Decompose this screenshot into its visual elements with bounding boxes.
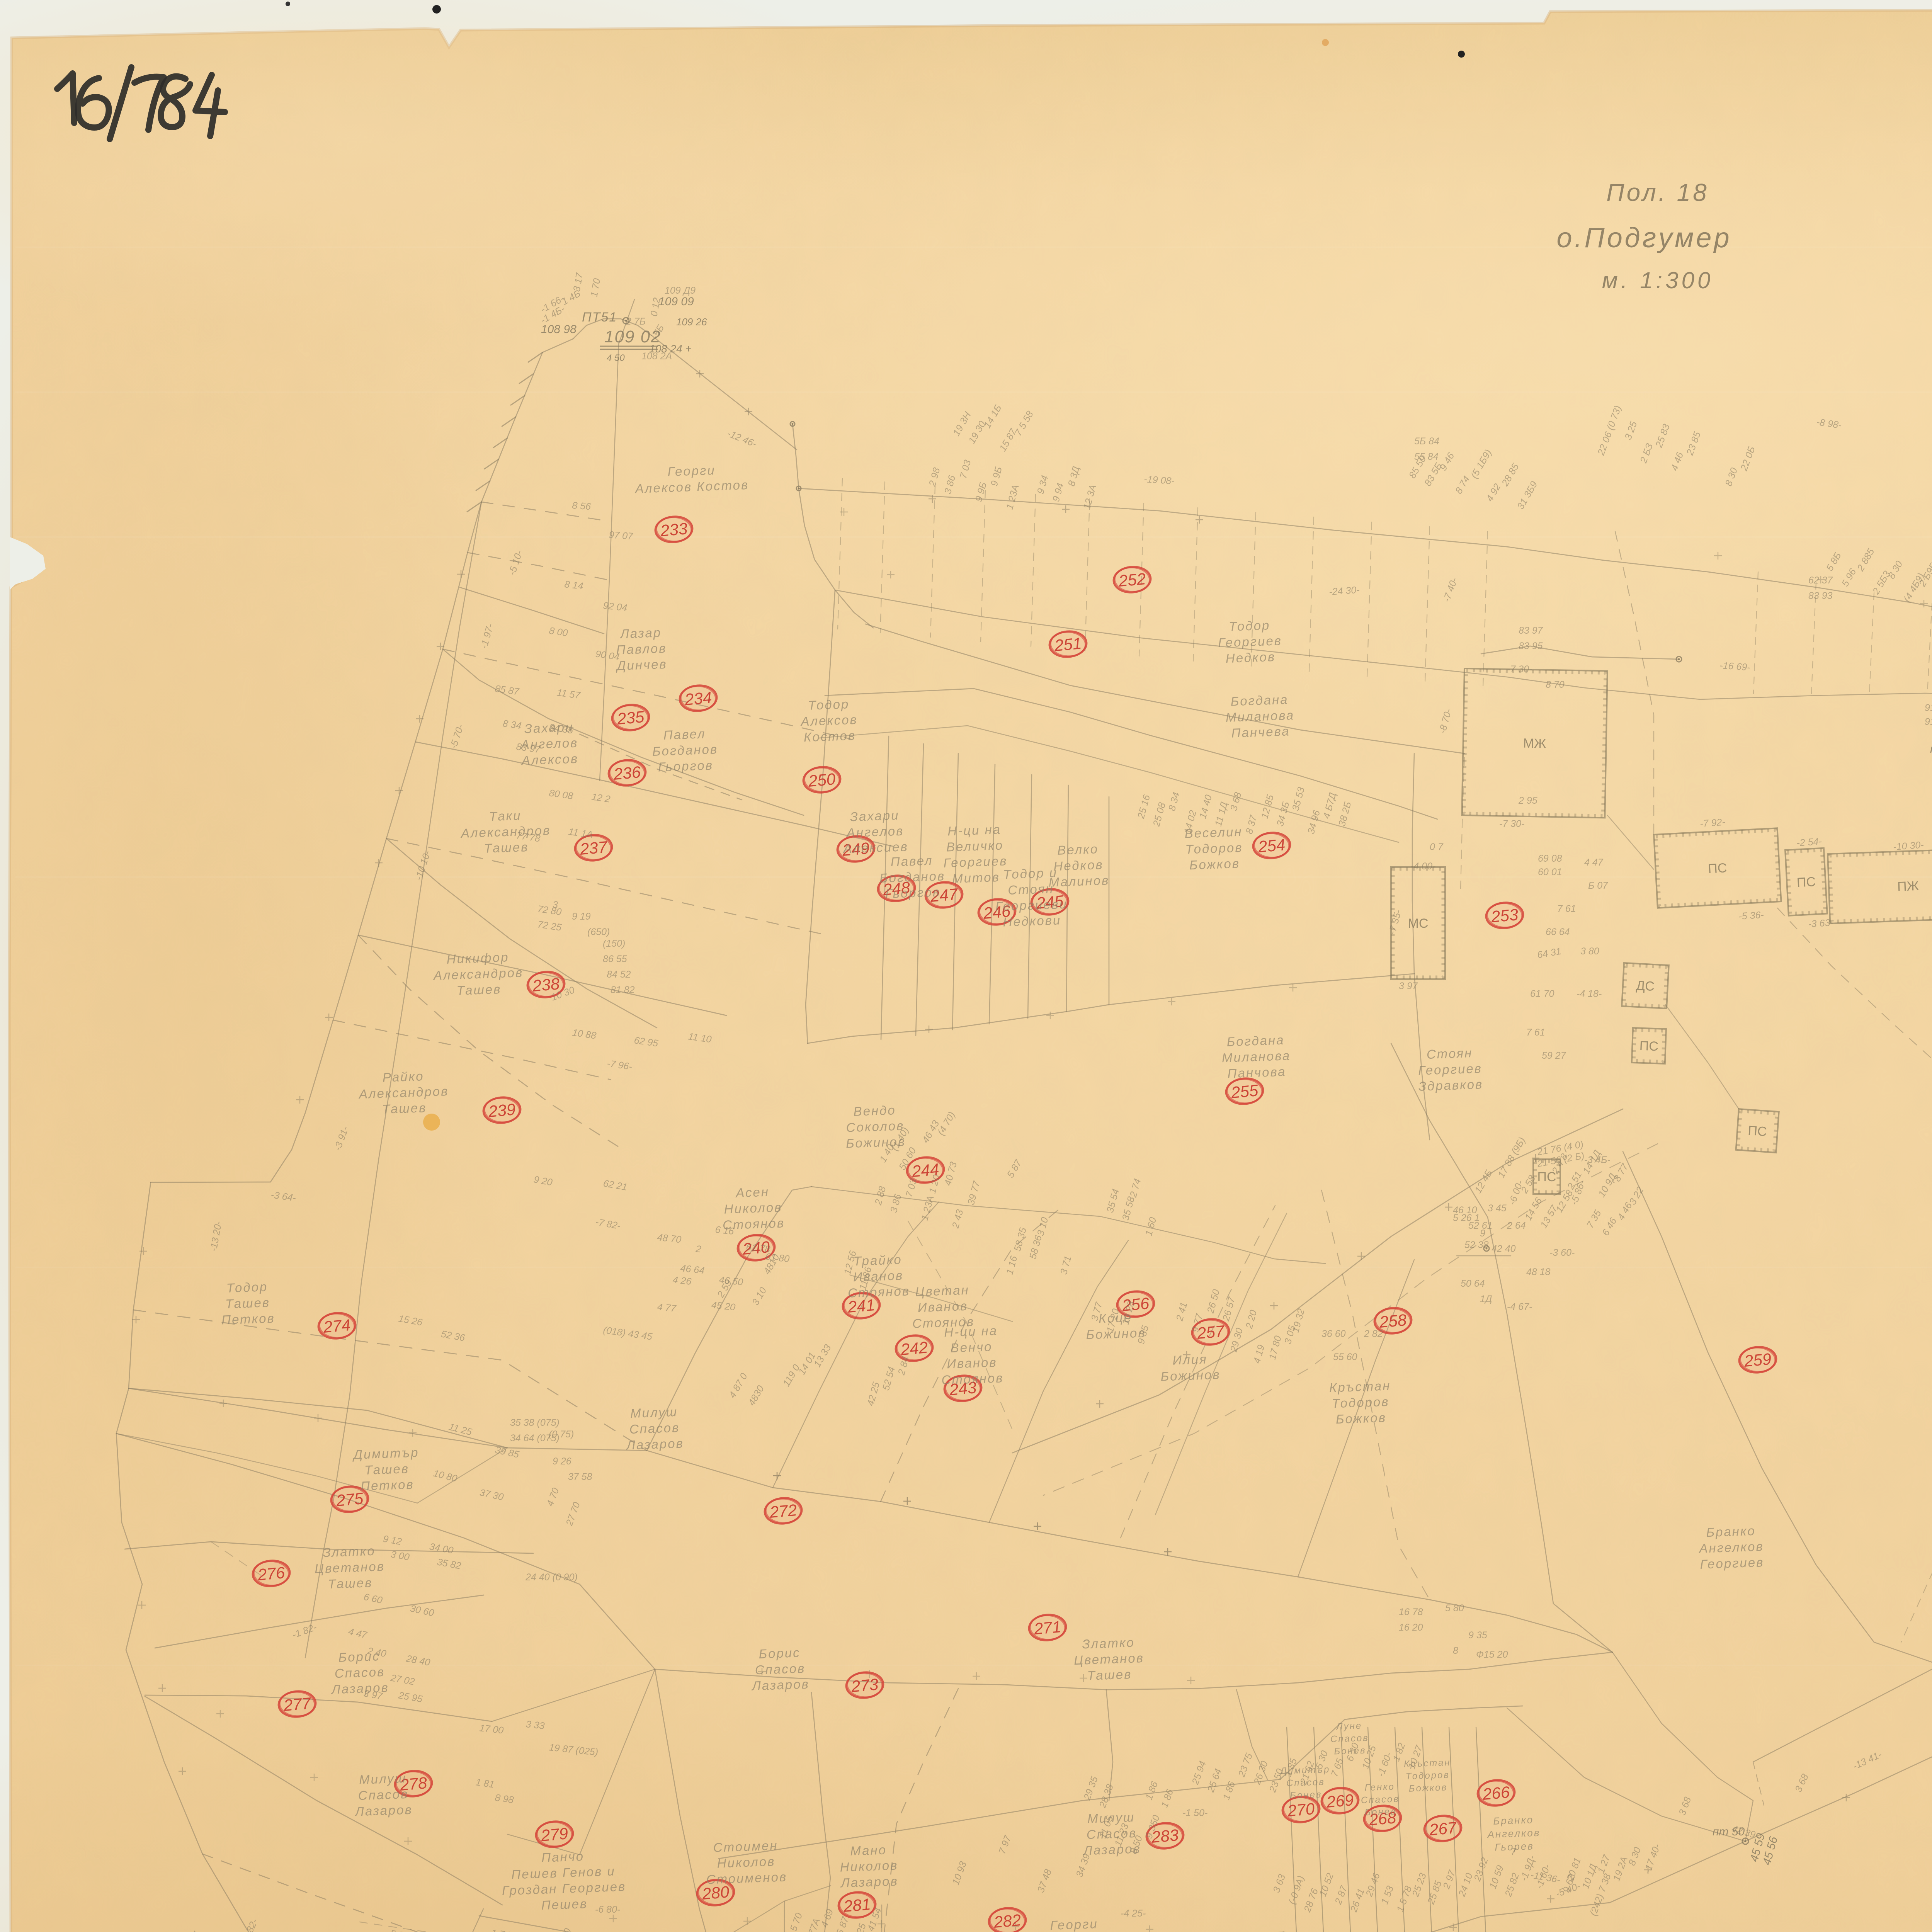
svg-text:Божинов: Божинов <box>1160 1367 1221 1383</box>
svg-text:Стоянов: Стоянов <box>941 1371 1004 1387</box>
svg-text:-24 30-: -24 30- <box>1328 585 1360 597</box>
svg-text:Богдана: Богдана <box>1230 692 1289 708</box>
svg-text:Тодоров: Тодоров <box>1332 1394 1389 1410</box>
svg-text:8 56: 8 56 <box>572 500 592 512</box>
svg-text:Златко: Златко <box>1082 1635 1135 1651</box>
svg-text:Иванов: Иванов <box>917 1299 968 1315</box>
svg-text:Богдана: Богдана <box>1226 1032 1285 1049</box>
svg-text:Бранко: Бранко <box>1706 1524 1756 1539</box>
svg-text:Бонев: Бонев <box>1290 1789 1322 1801</box>
svg-text:35 38 (075): 35 38 (075) <box>510 1417 560 1428</box>
svg-text:МЖ: МЖ <box>1523 736 1546 751</box>
svg-text:1Д: 1Д <box>1480 1294 1492 1304</box>
svg-text:Ташев: Ташев <box>328 1575 373 1591</box>
svg-text:ПС: ПС <box>1708 861 1727 876</box>
svg-text:ПС: ПС <box>1747 1123 1767 1139</box>
svg-text:(650): (650) <box>587 927 610 937</box>
svg-text:66 64: 66 64 <box>1546 927 1570 937</box>
svg-text:3 45: 3 45 <box>1488 1203 1507 1214</box>
svg-text:9 35: 9 35 <box>1468 1630 1487 1641</box>
svg-text:-2 54-: -2 54- <box>1796 836 1822 848</box>
svg-text:Трайко: Трайко <box>853 1252 902 1268</box>
svg-text:Димитър: Димитър <box>352 1445 419 1462</box>
svg-text:Костов: Костов <box>803 728 856 745</box>
svg-text:Митов: Митов <box>952 870 1000 886</box>
svg-text:42 40: 42 40 <box>1492 1243 1516 1254</box>
svg-text:Кръстан: Кръстан <box>1329 1378 1391 1395</box>
svg-text:Недков: Недков <box>1053 857 1104 873</box>
svg-text:Алексиев: Алексиев <box>842 839 909 856</box>
svg-text:97 07: 97 07 <box>609 529 634 542</box>
svg-text:4 50: 4 50 <box>607 353 625 363</box>
svg-text:-16 69-: -16 69- <box>1719 660 1751 673</box>
svg-text:Миланова: Миланова <box>1225 708 1294 724</box>
svg-text:83 95: 83 95 <box>1519 641 1543 651</box>
svg-text:Петков: Петков <box>361 1477 415 1493</box>
svg-text:Мано: Мано <box>850 1842 887 1858</box>
svg-text:271: 271 <box>1033 1617 1062 1638</box>
svg-text:61 70: 61 70 <box>1530 988 1554 999</box>
svg-text:2 64: 2 64 <box>1507 1220 1526 1231</box>
svg-text:Георгиев: Георгиев <box>1218 633 1282 650</box>
svg-text:259: 259 <box>1743 1350 1772 1370</box>
svg-text:Стоимен: Стоимен <box>713 1838 778 1855</box>
svg-text:-4 25-: -4 25- <box>1121 1908 1146 1919</box>
svg-text:5Б 84: 5Б 84 <box>1414 436 1439 447</box>
svg-text:Лазаров: Лазаров <box>751 1677 810 1693</box>
svg-text:Райко: Райко <box>382 1069 424 1085</box>
svg-text:Никифор: Никифор <box>446 950 509 966</box>
svg-text:Милуш: Милуш <box>630 1405 678 1420</box>
svg-text:ПЖ: ПЖ <box>1897 879 1919 894</box>
svg-text:273: 273 <box>850 1675 879 1696</box>
svg-text:255: 255 <box>1230 1081 1259 1102</box>
svg-text:Величко: Величко <box>946 838 1003 854</box>
svg-text:2 82: 2 82 <box>1364 1328 1383 1339</box>
svg-text:62 37: 62 37 <box>1808 575 1833 586</box>
svg-text:Гьоргов: Гьоргов <box>658 758 713 774</box>
svg-text:Спасов: Спасов <box>1330 1733 1369 1744</box>
svg-text:274: 274 <box>322 1316 351 1336</box>
svg-text:9 26: 9 26 <box>553 1456 571 1467</box>
svg-text:Алексов: Алексов <box>800 712 858 728</box>
svg-text:Николов: Николов <box>840 1858 898 1874</box>
svg-text:Лазаров: Лазаров <box>840 1874 899 1890</box>
svg-text:2 7Б: 2 7Б <box>626 316 646 327</box>
svg-text:Спасов: Спасов <box>334 1665 385 1681</box>
svg-text:м. 1:300: м. 1:300 <box>1602 267 1714 293</box>
svg-text:ПС: ПС <box>1639 1039 1658 1054</box>
svg-text:6 16: 6 16 <box>714 1224 734 1237</box>
svg-text:60 01: 60 01 <box>1538 867 1562 878</box>
svg-text:0 7: 0 7 <box>1430 842 1444 852</box>
svg-text:-4 00-: -4 00- <box>1410 861 1435 872</box>
svg-text:Божков: Божков <box>1189 856 1240 872</box>
svg-text:239: 239 <box>487 1100 516 1121</box>
svg-text:-1 50-: -1 50- <box>1182 1808 1207 1818</box>
svg-text:Лазар: Лазар <box>619 625 662 641</box>
svg-text:Н-ци на: Н-ци на <box>944 1323 998 1340</box>
svg-text:50 64: 50 64 <box>1461 1278 1485 1289</box>
svg-text:55 60: 55 60 <box>1333 1352 1357 1362</box>
svg-text:4 77: 4 77 <box>656 1301 677 1314</box>
svg-text:3: 3 <box>553 900 558 910</box>
svg-text:о.Подгумер: о.Подгумер <box>1556 223 1731 253</box>
svg-text:Здравков: Здравков <box>1418 1077 1483 1094</box>
svg-text:МС: МС <box>1408 916 1429 931</box>
svg-text:Ташев: Ташев <box>456 982 502 998</box>
svg-text:252: 252 <box>1117 570 1146 590</box>
svg-text:Недков: Недков <box>1225 650 1276 665</box>
svg-text:Божков: Божков <box>1335 1410 1386 1427</box>
svg-text:282: 282 <box>993 1911 1022 1931</box>
svg-text:Павел: Павел <box>663 726 706 742</box>
svg-text:Ангелков: Ангелков <box>1486 1827 1541 1840</box>
svg-text:пт 40: пт 40 <box>1930 743 1932 755</box>
svg-text:108 2А: 108 2А <box>641 351 672 362</box>
svg-text:Лазаров: Лазаров <box>354 1802 413 1818</box>
svg-text:91 22: 91 22 <box>1925 716 1932 727</box>
svg-text:Ф15 20: Ф15 20 <box>1476 1649 1508 1660</box>
svg-text:237: 237 <box>579 838 609 858</box>
svg-text:Стоименов: Стоименов <box>706 1869 787 1886</box>
svg-text:7 61: 7 61 <box>1557 903 1576 914</box>
svg-text:Миланова: Миланова <box>1221 1048 1291 1065</box>
svg-text:279: 279 <box>540 1824 569 1845</box>
svg-text:Панчева: Панчева <box>1231 724 1290 740</box>
svg-text:8: 8 <box>1453 1645 1458 1656</box>
svg-text:Ангелков: Ангелков <box>1698 1539 1764 1556</box>
svg-text:Георги: Георги <box>1050 1917 1098 1932</box>
svg-text:Илия: Илия <box>1172 1352 1207 1367</box>
svg-text:Милуш: Милуш <box>359 1771 406 1787</box>
svg-text:Ташев: Ташев <box>225 1295 270 1311</box>
svg-text:16 78: 16 78 <box>1399 1607 1423 1617</box>
svg-text:Малинов: Малинов <box>1048 873 1110 889</box>
svg-text:108 98: 108 98 <box>541 323 577 336</box>
svg-text:Златко: Златко <box>323 1544 376 1560</box>
svg-text:242: 242 <box>900 1338 929 1359</box>
svg-text:266: 266 <box>1481 1783 1511 1803</box>
svg-text:254: 254 <box>1257 835 1286 856</box>
svg-text:55 84: 55 84 <box>1414 451 1439 462</box>
svg-text:84 52: 84 52 <box>607 969 631 980</box>
svg-text:267: 267 <box>1428 1818 1458 1839</box>
svg-text:Ташев: Ташев <box>1087 1667 1132 1683</box>
svg-text:ДС: ДС <box>1636 978 1655 994</box>
svg-text:275: 275 <box>335 1489 364 1510</box>
svg-text:Луне: Луне <box>1335 1721 1362 1732</box>
svg-text:-6 80-: -6 80- <box>595 1904 620 1915</box>
svg-text:-7 92-: -7 92- <box>1699 816 1725 829</box>
svg-text:109 Д9: 109 Д9 <box>665 285 696 296</box>
svg-text:270: 270 <box>1286 1799 1316 1820</box>
svg-text:Тодоров: Тодоров <box>1185 840 1243 856</box>
svg-text:Гьоргов: Гьоргов <box>885 884 940 901</box>
svg-text:Панчо: Панчо <box>541 1849 585 1865</box>
svg-text:8 14: 8 14 <box>564 579 583 592</box>
svg-text:236: 236 <box>612 763 642 783</box>
svg-text:Недкови: Недкови <box>1003 913 1061 929</box>
svg-text:86 55: 86 55 <box>603 954 627 964</box>
svg-text:2: 2 <box>695 1243 702 1255</box>
svg-text:-7 30-: -7 30- <box>1507 664 1532 675</box>
svg-text:Николов: Николов <box>724 1200 782 1216</box>
svg-text:Иванов: Иванов <box>947 1355 997 1371</box>
svg-text:48 18: 48 18 <box>1526 1267 1551 1277</box>
svg-text:Н-ци на: Н-ци на <box>947 822 1002 838</box>
svg-text:109 26: 109 26 <box>676 316 707 328</box>
svg-text:81 82: 81 82 <box>611 985 635 995</box>
svg-text:24 40 (0 90): 24 40 (0 90) <box>525 1572 578 1583</box>
svg-text:Пешев: Пешев <box>541 1896 588 1912</box>
svg-text:277: 277 <box>282 1694 312 1714</box>
svg-text:Борис: Борис <box>759 1645 801 1661</box>
svg-text:9 19: 9 19 <box>572 911 591 922</box>
svg-text:Павлов: Павлов <box>616 641 667 657</box>
svg-text:36 60: 36 60 <box>1321 1328 1346 1339</box>
svg-text:52 38: 52 38 <box>1464 1240 1489 1250</box>
svg-text:8 70: 8 70 <box>1546 679 1565 690</box>
svg-text:4 47: 4 47 <box>1584 857 1604 868</box>
svg-text:Богданов: Богданов <box>879 869 945 885</box>
svg-text:276: 276 <box>257 1563 286 1584</box>
svg-text:Тодор: Тодор <box>226 1279 268 1295</box>
svg-text:9: 9 <box>1480 1228 1485 1239</box>
svg-text:Павел: Павел <box>890 853 933 869</box>
svg-text:-7 30-: -7 30- <box>1499 818 1524 829</box>
svg-text:-5 36-: -5 36- <box>1738 909 1764 922</box>
svg-text:Бонев: Бонев <box>1364 1806 1397 1818</box>
svg-text:269: 269 <box>1325 1791 1354 1811</box>
svg-text:Спасов: Спасов <box>755 1661 806 1677</box>
svg-text:Спасов: Спасов <box>629 1420 680 1437</box>
svg-text:83 97: 83 97 <box>1519 625 1543 636</box>
svg-text:109 09: 109 09 <box>658 295 694 308</box>
svg-text:5 80: 5 80 <box>1445 1603 1464 1614</box>
svg-text:Соколов: Соколов <box>846 1118 905 1134</box>
svg-text:Георги: Георги <box>667 463 716 479</box>
svg-text:Георгиеви: Георгиеви <box>995 897 1068 914</box>
svg-text:-3 63-: -3 63- <box>1808 917 1833 929</box>
svg-text:3 80: 3 80 <box>1580 946 1599 957</box>
svg-text:-4 67-: -4 67- <box>1507 1301 1532 1312</box>
svg-text:Георгиев: Георгиев <box>943 854 1008 870</box>
svg-text:Асен: Асен <box>735 1185 770 1200</box>
svg-text:ПС: ПС <box>1796 874 1816 890</box>
svg-text:34 64 (075): 34 64 (075) <box>510 1433 560 1444</box>
svg-text:Божков: Божков <box>1408 1782 1447 1794</box>
svg-text:7 61: 7 61 <box>1526 1027 1545 1038</box>
svg-text:Генко: Генко <box>1364 1782 1395 1793</box>
svg-text:Таки: Таки <box>489 808 522 824</box>
svg-text:37 58: 37 58 <box>568 1471 592 1482</box>
svg-text:Спасов: Спасов <box>358 1787 409 1803</box>
svg-text:Ангелов: Ангелов <box>845 823 904 840</box>
svg-text:3 97: 3 97 <box>1399 981 1418 992</box>
svg-text:Николов: Николов <box>717 1854 776 1870</box>
svg-text:16 20: 16 20 <box>1399 1622 1423 1633</box>
svg-text:Петков: Петков <box>221 1311 276 1327</box>
svg-text:59 27: 59 27 <box>1542 1050 1566 1061</box>
svg-text:250: 250 <box>807 770 837 790</box>
svg-text:Богданов: Богданов <box>652 742 718 759</box>
svg-text:Стоян: Стоян <box>1008 881 1054 897</box>
svg-text:-19 08-: -19 08- <box>1144 474 1175 486</box>
svg-text:Цветанов: Цветанов <box>315 1559 385 1576</box>
svg-text:251: 251 <box>1053 634 1082 655</box>
svg-text:2 95: 2 95 <box>1518 795 1537 806</box>
svg-text:-3 4Б-: -3 4Б- <box>1584 1155 1611 1165</box>
svg-text:Динчев: Динчев <box>615 657 668 673</box>
svg-text:91 27: 91 27 <box>1925 702 1932 713</box>
svg-text:Пол. 18: Пол. 18 <box>1606 179 1709 206</box>
svg-text:-4 18-: -4 18- <box>1577 988 1602 999</box>
svg-text:ПТ51: ПТ51 <box>582 310 617 325</box>
svg-text:Георгиев: Георгиев <box>1700 1555 1764 1571</box>
svg-text:Стоянов: Стоянов <box>847 1284 910 1300</box>
svg-text:Спасов: Спасов <box>1361 1794 1400 1805</box>
svg-text:Стоян: Стоян <box>1426 1046 1473 1061</box>
svg-text:Ташев: Ташев <box>382 1100 427 1116</box>
svg-text:83 93: 83 93 <box>1808 590 1833 601</box>
svg-text:281: 281 <box>842 1895 871 1915</box>
svg-text:Тодор: Тодор <box>1228 618 1270 634</box>
svg-text:Венчо: Венчо <box>950 1339 993 1355</box>
svg-text:-10 30-: -10 30- <box>1893 840 1924 852</box>
svg-text:Вендо: Вендо <box>853 1103 896 1119</box>
svg-text:Цветан: Цветан <box>915 1283 969 1299</box>
svg-text:Бранко: Бранко <box>1493 1814 1534 1827</box>
svg-text:4 26: 4 26 <box>672 1274 692 1287</box>
svg-text:233: 233 <box>659 519 688 540</box>
svg-text:234: 234 <box>684 688 713 709</box>
svg-text:Цветанов: Цветанов <box>1074 1651 1145 1667</box>
svg-text:Захари: Захари <box>850 808 900 824</box>
svg-text:Велко: Велко <box>1057 842 1099 857</box>
svg-text:7: 7 <box>1511 1846 1517 1857</box>
svg-text:-3 60-: -3 60- <box>1549 1247 1575 1258</box>
svg-text:Лазаров: Лазаров <box>626 1436 684 1452</box>
svg-text:5 26 1: 5 26 1 <box>1453 1213 1480 1223</box>
svg-text:253: 253 <box>1490 905 1519 926</box>
svg-text:Тодор: Тодор <box>808 697 850 713</box>
svg-text:Георгиев: Георгиев <box>1418 1061 1483 1078</box>
svg-text:272: 272 <box>769 1501 798 1521</box>
svg-text:3 33: 3 33 <box>525 1719 545 1731</box>
svg-text:Тодоров: Тодоров <box>1405 1770 1450 1782</box>
svg-text:69 08: 69 08 <box>1538 853 1562 864</box>
svg-text:235: 235 <box>616 707 645 728</box>
svg-text:Ташев: Ташев <box>484 840 529 855</box>
svg-text:Панчова: Панчова <box>1227 1064 1286 1080</box>
svg-text:(150): (150) <box>603 938 625 949</box>
svg-text:Б 07: Б 07 <box>1588 880 1608 891</box>
svg-text:Ташев: Ташев <box>364 1461 410 1477</box>
